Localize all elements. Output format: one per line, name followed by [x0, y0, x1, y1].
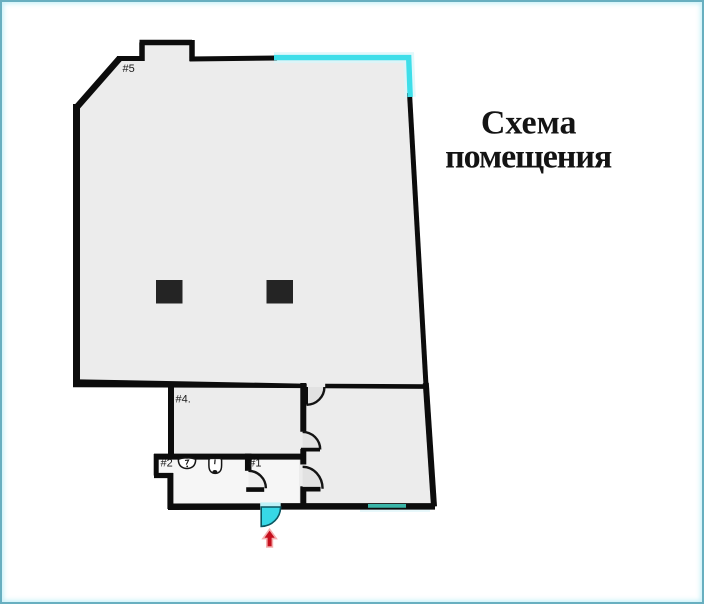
svg-text:Схема: Схема: [481, 105, 577, 142]
svg-text:#4.: #4.: [176, 394, 191, 406]
svg-text:помещения: помещения: [445, 139, 612, 176]
svg-text:#1: #1: [249, 458, 261, 470]
svg-text:#2: #2: [161, 457, 173, 469]
svg-text:#5: #5: [123, 63, 135, 75]
